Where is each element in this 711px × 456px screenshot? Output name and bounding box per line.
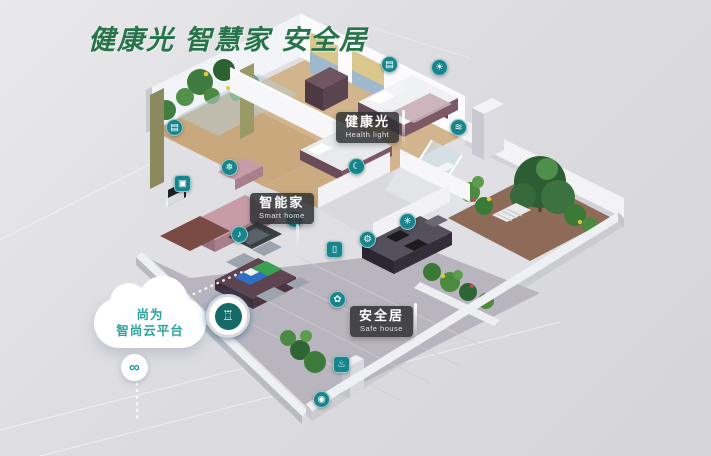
smart-hub-icon: ♖: [215, 303, 242, 330]
window-sensor-device-icon: ▯: [326, 241, 343, 258]
ceiling-light-device-icon: ☀: [431, 59, 448, 76]
bath-water-device-icon: ≋: [450, 119, 467, 136]
house-illustration: [0, 0, 711, 456]
page-title: 健康光 智慧家 安全居: [88, 18, 368, 57]
zone-badge-health-light-en: Health light: [345, 130, 390, 139]
zone-badge-safe-house-zh: 安全居: [359, 309, 404, 324]
curtain-device-icon: ▤: [166, 119, 183, 136]
zone-badge-safe-house: 安全居 Safe house: [350, 306, 413, 337]
cloud-platform-badge: 尚为 智尚云平台: [94, 298, 206, 348]
cloud-platform-name: 尚为: [136, 307, 163, 323]
smart-home-promo-image: { "title": "健康光 智慧家 安全居", "cloud": { "na…: [0, 0, 711, 456]
wall-column: [472, 98, 504, 160]
cloud-link-icon: ∞: [121, 354, 148, 381]
smart-home-beam: [296, 224, 299, 246]
zone-badge-smart-home-en: Smart home: [259, 211, 305, 220]
ac-device-icon: ❄: [221, 159, 238, 176]
tv-device-icon: ▣: [174, 175, 191, 192]
cloud-platform-line: 智尚云平台: [116, 323, 184, 339]
zone-badge-smart-home: 智能家 Smart home: [250, 193, 314, 224]
smart-hub-device: ♖: [206, 294, 250, 338]
sleep-device-icon: ☾: [348, 158, 365, 175]
doorbell-device-icon: ◉: [313, 391, 330, 408]
floor-heating-device-icon: ♨: [333, 356, 350, 373]
zone-badge-health-light-zh: 健康光: [345, 115, 390, 130]
speaker-device-icon: ♪: [231, 226, 248, 243]
gear-device-icon: ⚙: [359, 231, 376, 248]
zone-badge-safe-house-en: Safe house: [359, 324, 404, 333]
bedroom-curtain-device-icon: ▤: [381, 56, 398, 73]
zone-badge-health-light: 健康光 Health light: [336, 112, 399, 143]
health-light-beam: [402, 110, 405, 148]
safe-house-beam: [414, 303, 417, 341]
irrigation-device-icon: ✿: [329, 291, 346, 308]
wifi-device-icon: ✳: [399, 213, 416, 230]
curtain-left: [150, 88, 164, 189]
zone-badge-smart-home-zh: 智能家: [259, 196, 305, 211]
